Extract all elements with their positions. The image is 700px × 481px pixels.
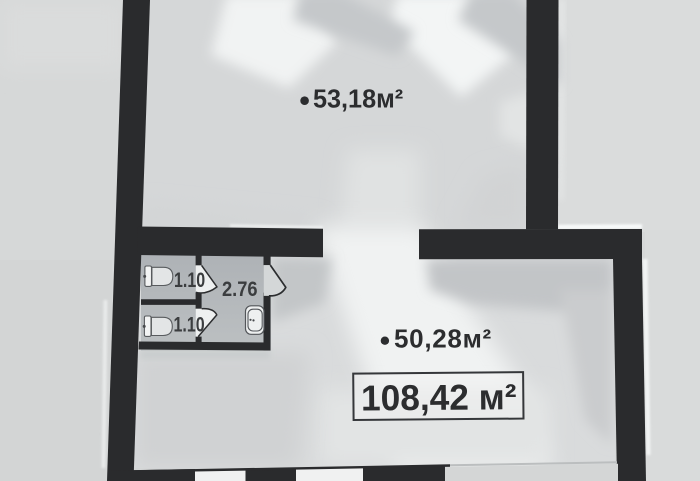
svg-text:108,42 м²: 108,42 м² (361, 377, 517, 419)
svg-text:1.10: 1.10 (174, 269, 205, 293)
svg-text:1.10: 1.10 (174, 313, 205, 337)
svg-text:50,28м²: 50,28м² (394, 324, 492, 354)
svg-text:2.76: 2.76 (222, 277, 258, 301)
svg-text:53,18м²: 53,18м² (313, 85, 403, 113)
